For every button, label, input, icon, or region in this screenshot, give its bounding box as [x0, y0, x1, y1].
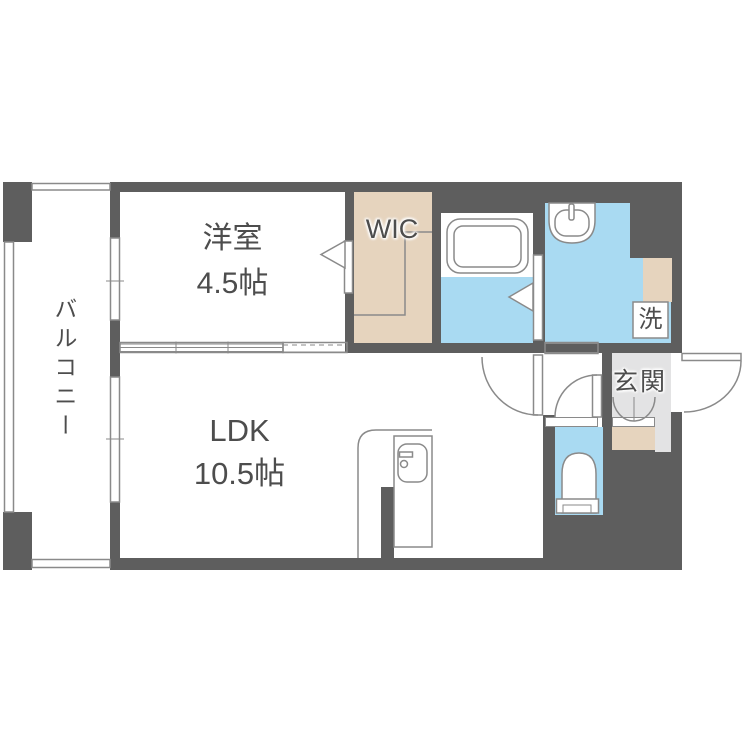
open-passage [283, 343, 347, 353]
ldk-name: LDK [152, 409, 327, 452]
laundry-label: 洗 [633, 302, 668, 338]
hallway-door-arc [482, 357, 538, 415]
bathtub-icon [447, 219, 528, 273]
toilet-icon [557, 453, 599, 513]
balcony-railing-left [5, 242, 14, 512]
wic-door-arrow-icon [321, 241, 345, 268]
balcony-railing-bottom [32, 560, 110, 568]
entrance-door-arc [684, 361, 741, 412]
floor-plan: バルコニー 洋室 4.5帖 WIC LDK 10.5帖 玄関 洗 [0, 0, 750, 750]
bathroom-door-arrow-icon [509, 283, 533, 311]
entrance-door-leaf [682, 354, 741, 361]
balcony-railing-top [32, 184, 110, 191]
toilet-door-arc [555, 375, 597, 417]
western-room-label: 洋室 4.5帖 [150, 216, 315, 306]
toilet-door-leaf [593, 375, 602, 417]
entrance-label: 玄関 [606, 366, 674, 399]
window-western-room [111, 238, 120, 320]
western-room-size: 4.5帖 [150, 261, 315, 306]
bathroom-door-leaf [534, 255, 543, 340]
western-room-name: 洋室 [150, 216, 315, 261]
ldk-label: LDK 10.5帖 [152, 409, 327, 495]
sliding-door [120, 342, 283, 354]
shoebox-doors-icon [613, 397, 655, 421]
ldk-size: 10.5帖 [152, 452, 327, 495]
balcony-label: バルコニー [48, 297, 78, 442]
wic-label: WIC [352, 212, 432, 247]
hallway-door-leaf [534, 355, 543, 415]
kitchen-counter-icon [358, 430, 432, 558]
washroom-opening [545, 343, 598, 354]
washbasin-icon [549, 203, 595, 243]
